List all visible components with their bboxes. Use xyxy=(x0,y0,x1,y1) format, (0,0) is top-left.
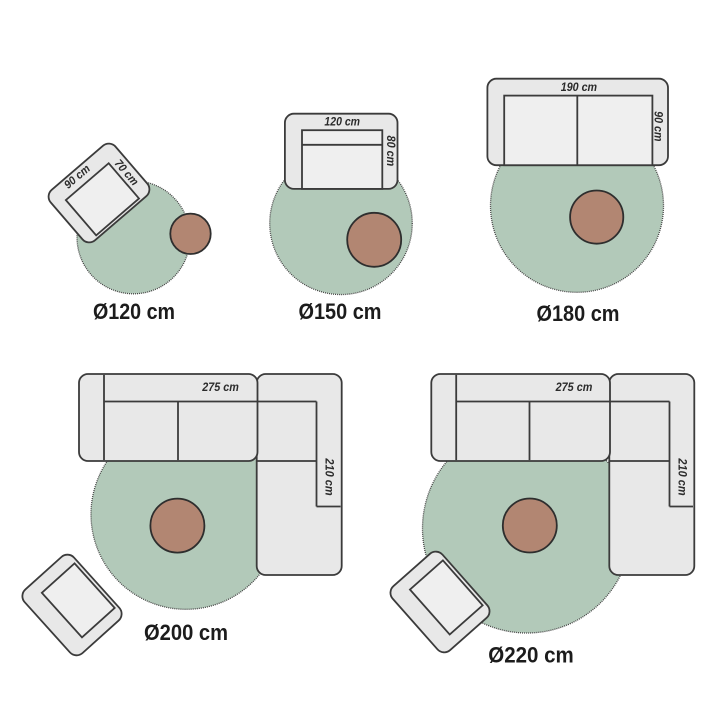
svg-text:210 cm: 210 cm xyxy=(676,457,688,495)
svg-text:Ø180 cm: Ø180 cm xyxy=(537,301,620,326)
svg-text:210 cm: 210 cm xyxy=(323,457,335,495)
svg-text:120 cm: 120 cm xyxy=(324,117,360,129)
svg-text:275 cm: 275 cm xyxy=(201,382,239,394)
svg-text:Ø150 cm: Ø150 cm xyxy=(299,299,382,324)
svg-text:Ø220 cm: Ø220 cm xyxy=(488,643,574,668)
svg-text:90 cm: 90 cm xyxy=(652,111,664,141)
svg-text:Ø120 cm: Ø120 cm xyxy=(93,299,175,324)
svg-text:190 cm: 190 cm xyxy=(561,82,597,94)
svg-text:Ø200 cm: Ø200 cm xyxy=(144,620,228,645)
svg-text:80 cm: 80 cm xyxy=(384,136,396,167)
svg-text:275 cm: 275 cm xyxy=(555,382,593,394)
